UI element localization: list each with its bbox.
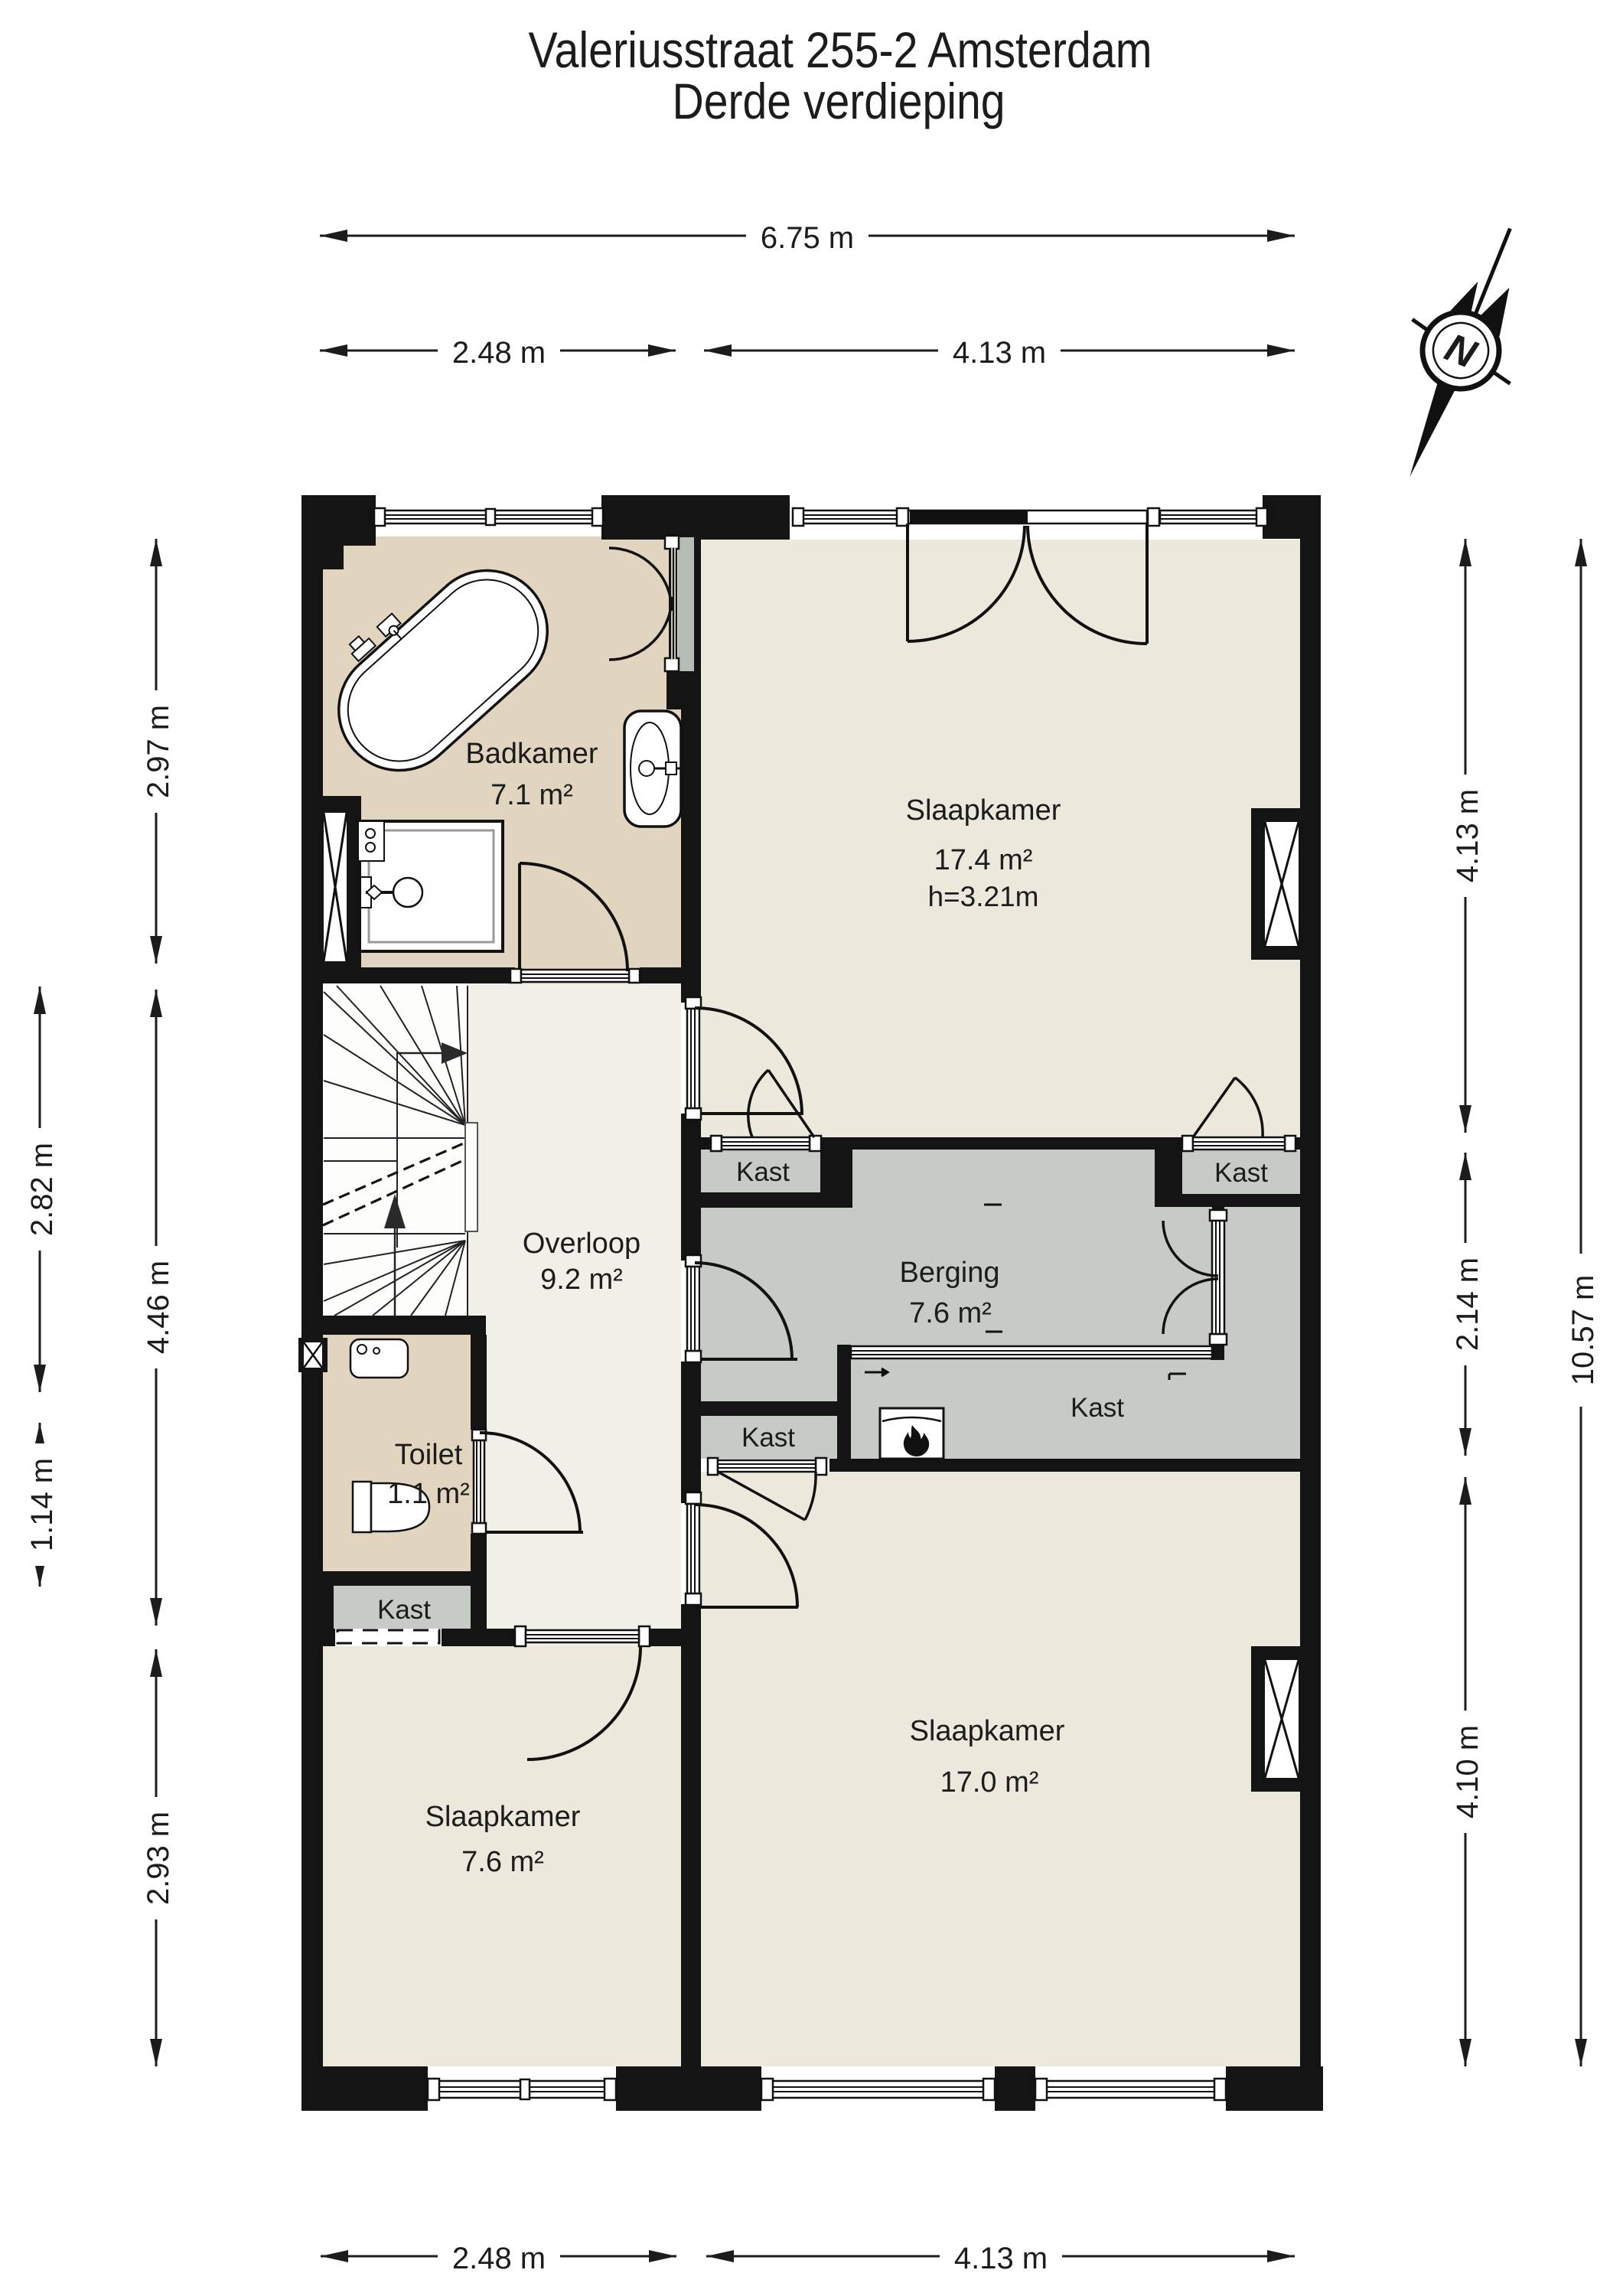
svg-text:4.13 m: 4.13 m <box>954 2242 1048 2275</box>
svg-text:4.13 m: 4.13 m <box>953 336 1046 370</box>
svg-text:h=3.21m: h=3.21m <box>927 881 1038 912</box>
svg-text:1.1 m²: 1.1 m² <box>387 1478 470 1510</box>
svg-text:Kast: Kast <box>1071 1393 1124 1423</box>
svg-text:7.6 m²: 7.6 m² <box>909 1297 992 1329</box>
svg-text:Kast: Kast <box>1214 1158 1268 1188</box>
svg-text:2.97 m: 2.97 m <box>142 705 175 798</box>
svg-text:7.1 m²: 7.1 m² <box>490 779 573 811</box>
svg-text:2.48 m: 2.48 m <box>452 2242 546 2275</box>
svg-text:17.4 m²: 17.4 m² <box>934 844 1033 876</box>
svg-text:Slaapkamer: Slaapkamer <box>906 794 1061 827</box>
svg-text:9.2 m²: 9.2 m² <box>540 1264 623 1296</box>
svg-text:1.14 m: 1.14 m <box>25 1458 59 1551</box>
svg-text:Slaapkamer: Slaapkamer <box>910 1715 1065 1747</box>
svg-text:2.82 m: 2.82 m <box>25 1143 59 1236</box>
svg-text:Berging: Berging <box>900 1257 1000 1289</box>
svg-text:4.13 m: 4.13 m <box>1451 789 1484 882</box>
svg-text:4.10 m: 4.10 m <box>1451 1725 1484 1818</box>
svg-text:2.93 m: 2.93 m <box>142 1812 175 1905</box>
svg-text:Slaapkamer: Slaapkamer <box>425 1801 581 1833</box>
svg-text:Kast: Kast <box>741 1423 795 1453</box>
svg-text:17.0 m²: 17.0 m² <box>940 1766 1039 1799</box>
svg-text:Kast: Kast <box>377 1595 431 1625</box>
svg-text:Overloop: Overloop <box>523 1228 640 1260</box>
svg-text:6.75 m: 6.75 m <box>761 221 854 255</box>
svg-text:Toilet: Toilet <box>395 1439 463 1471</box>
svg-text:Valeriusstraat 255-2 Amsterdam: Valeriusstraat 255-2 Amsterdam <box>529 21 1152 78</box>
svg-text:10.57 m: 10.57 m <box>1566 1275 1600 1386</box>
svg-text:4.46 m: 4.46 m <box>142 1261 175 1354</box>
svg-text:2.48 m: 2.48 m <box>452 336 546 370</box>
svg-text:Derde verdieping: Derde verdieping <box>673 73 1005 129</box>
svg-text:7.6 m²: 7.6 m² <box>461 1846 544 1878</box>
svg-text:Kast: Kast <box>736 1157 790 1187</box>
svg-text:Badkamer: Badkamer <box>465 738 598 770</box>
svg-text:2.14 m: 2.14 m <box>1451 1257 1484 1351</box>
